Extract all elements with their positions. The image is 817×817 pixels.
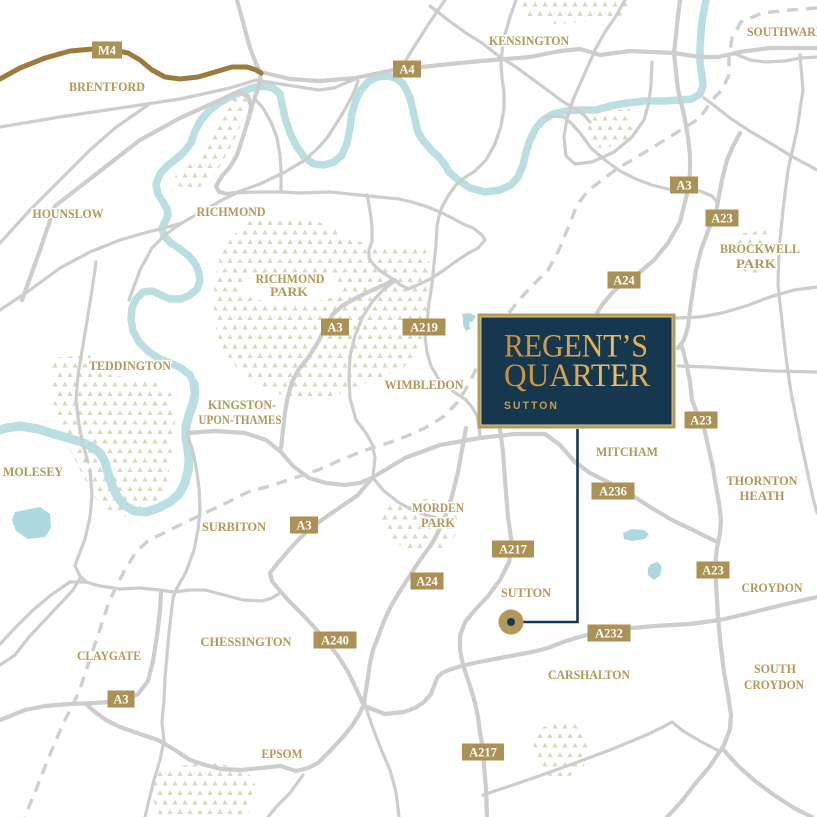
svg-text:KENSINGTON: KENSINGTON	[489, 33, 570, 48]
svg-text:SUTTON: SUTTON	[501, 585, 552, 600]
svg-text:A23: A23	[711, 212, 733, 226]
svg-text:BROCKWELL: BROCKWELL	[720, 241, 800, 256]
svg-text:CROYDON: CROYDON	[744, 677, 805, 692]
svg-text:PARK: PARK	[270, 284, 309, 299]
svg-text:MOLESEY: MOLESEY	[3, 464, 64, 479]
svg-text:A219: A219	[410, 321, 438, 335]
svg-text:A3: A3	[676, 179, 691, 193]
svg-text:HEATH: HEATH	[740, 488, 785, 503]
svg-text:CHESSINGTON: CHESSINGTON	[201, 634, 293, 649]
svg-text:PARK: PARK	[736, 256, 777, 271]
svg-text:SURBITON: SURBITON	[202, 519, 267, 534]
svg-text:QUARTER: QUARTER	[504, 358, 650, 394]
svg-text:A3: A3	[296, 519, 311, 533]
svg-text:THORNTON: THORNTON	[727, 473, 799, 488]
svg-text:A236: A236	[599, 485, 627, 499]
svg-text:CLAYGATE: CLAYGATE	[77, 648, 141, 663]
svg-text:SOUTH: SOUTH	[754, 661, 796, 676]
svg-text:HOUNSLOW: HOUNSLOW	[33, 206, 104, 221]
svg-text:RICHMOND: RICHMOND	[197, 204, 266, 219]
svg-text:UPON-THAMES: UPON-THAMES	[199, 412, 282, 427]
svg-text:WIMBLEDON: WIMBLEDON	[385, 377, 465, 392]
svg-text:A240: A240	[321, 634, 349, 648]
svg-text:KINGSTON-: KINGSTON-	[208, 397, 276, 412]
svg-text:A217: A217	[499, 543, 527, 557]
svg-text:A23: A23	[690, 414, 712, 428]
svg-text:CROYDON: CROYDON	[742, 580, 804, 595]
svg-text:MORDEN: MORDEN	[412, 500, 465, 515]
svg-text:A217: A217	[469, 746, 497, 760]
svg-text:A3: A3	[327, 321, 342, 335]
svg-text:SOUTHWARK: SOUTHWARK	[747, 24, 817, 39]
svg-text:MITCHAM: MITCHAM	[596, 444, 658, 459]
svg-text:A3: A3	[113, 693, 128, 707]
svg-text:EPSOM: EPSOM	[262, 746, 303, 761]
svg-text:CARSHALTON: CARSHALTON	[548, 667, 631, 682]
svg-text:A24: A24	[416, 575, 438, 589]
svg-text:A232: A232	[595, 627, 623, 641]
svg-text:TEDDINGTON: TEDDINGTON	[89, 358, 172, 373]
svg-text:A24: A24	[613, 274, 635, 288]
svg-text:SUTTON: SUTTON	[504, 400, 559, 412]
svg-text:M4: M4	[98, 44, 117, 58]
svg-text:A4: A4	[399, 63, 415, 77]
svg-text:A23: A23	[702, 564, 724, 578]
svg-text:PARK: PARK	[421, 515, 456, 530]
svg-text:BRENTFORD: BRENTFORD	[69, 79, 145, 94]
